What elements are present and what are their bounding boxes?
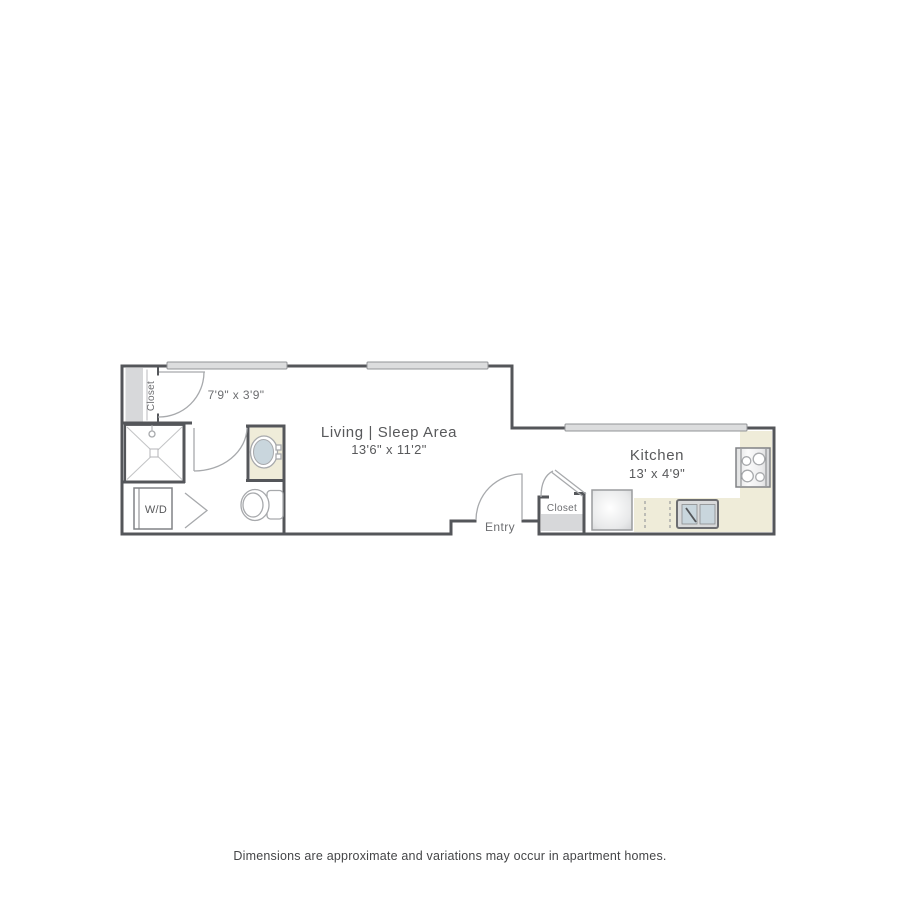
stove (736, 448, 770, 487)
entry-label: Entry (485, 520, 515, 534)
window (167, 362, 287, 369)
floorplan: W/D (0, 0, 900, 900)
disclaimer-text: Dimensions are approximate and variation… (0, 849, 900, 863)
shower-head-icon (149, 425, 155, 437)
bathroom-door-swing (194, 428, 247, 471)
closet-door-swing (158, 367, 205, 422)
bathroom-dimensions: 7'9" x 3'9" (208, 388, 265, 402)
kitchen-dimensions: 13' x 4'9" (629, 466, 685, 481)
washer-dryer: W/D (134, 488, 172, 529)
bifold-door (185, 493, 207, 528)
toilet (241, 490, 283, 521)
closet-left-label: Closet (146, 381, 157, 411)
kitchen-label: Kitchen (630, 447, 684, 464)
living-area-dimensions: 13'6" x 11'2" (351, 442, 427, 457)
kitchen-sink (677, 500, 718, 528)
floorplan-page: W/D (0, 0, 900, 900)
window (367, 362, 488, 369)
closet-left-fill (126, 368, 144, 422)
entry-closet-door (541, 470, 586, 497)
wd-label: W/D (145, 504, 167, 516)
entry-closet-fill (541, 514, 583, 531)
entry-closet-label: Closet (547, 503, 577, 514)
refrigerator (592, 490, 632, 530)
window (565, 424, 747, 431)
living-area-label: Living | Sleep Area (321, 424, 457, 441)
shower (125, 425, 184, 482)
entry-door-swing (476, 474, 522, 521)
